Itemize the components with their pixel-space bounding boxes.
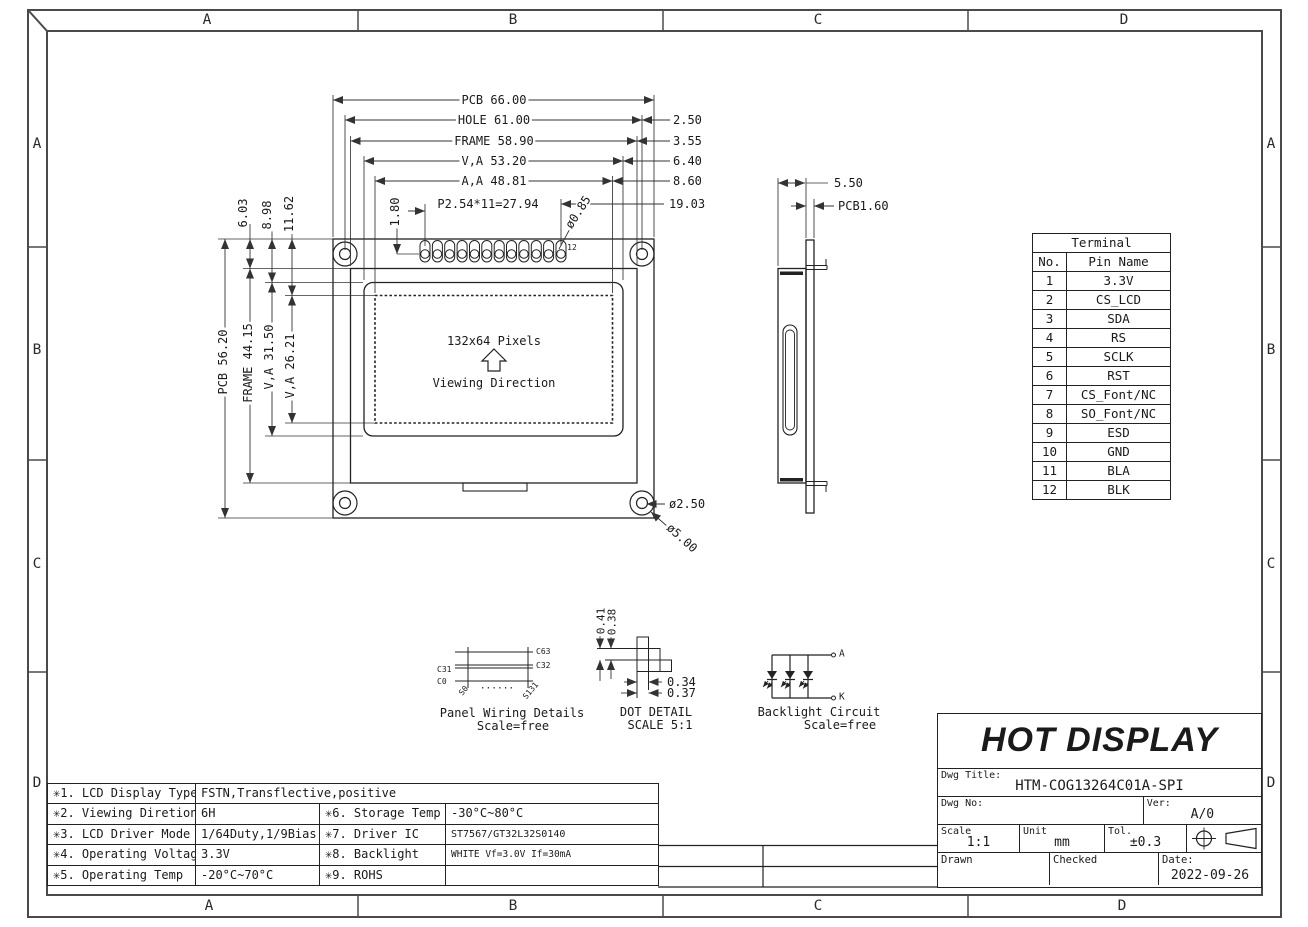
spec-value: WHITE Vf=3.0V If=30mA (446, 845, 659, 865)
terminal-no: 4 (1033, 329, 1067, 348)
dim-hole-width: HOLE 61.00 (456, 114, 532, 126)
terminal-pin-name: SO_Font/NC (1067, 405, 1171, 424)
dim-offset-frame: 3.55 (671, 135, 704, 147)
terminal-pin-name: BLA (1067, 462, 1171, 481)
spec-key: ✳3. LCD Driver Mode (48, 824, 196, 844)
dim-va-width: V,A 53.20 (459, 155, 528, 167)
zone-col-c-top: C (814, 13, 823, 28)
terminal-no: 1 (1033, 272, 1067, 291)
terminal-pin-name: RS (1067, 329, 1171, 348)
spec-key: ✳9. ROHS (320, 865, 446, 885)
zone-row-c-left: C (33, 557, 42, 572)
panel-wiring-scale: Scale=free (477, 720, 549, 732)
checked-label: Checked (1053, 854, 1097, 866)
projection-symbol-icon (1188, 826, 1261, 851)
terminal-no: 11 (1033, 462, 1067, 481)
spec-key: ✳7. Driver IC (320, 824, 446, 844)
zone-col-a-bottom: A (205, 899, 214, 914)
dwg-no-label: Dwg No: (941, 798, 983, 809)
dimension-lines (225, 100, 834, 527)
terminal-row: 9 ESD (1033, 424, 1171, 443)
zone-row-c-right: C (1267, 557, 1276, 572)
terminal-no: 8 (1033, 405, 1067, 424)
terminal-row: 7 CS_Font/NC (1033, 386, 1171, 405)
dim-hole-dia: ø2.50 (667, 498, 707, 510)
terminal-pin-name: ESD (1067, 424, 1171, 443)
spec-key: ✳4. Operating Voltage (48, 845, 196, 865)
dim-aa-height: V,A 26.21 (284, 331, 296, 400)
terminal-title: Terminal (1033, 234, 1171, 253)
note-cells (658, 846, 937, 888)
spec-key: ✳8. Backlight (320, 845, 446, 865)
terminal-pin-name: BLK (1067, 481, 1171, 500)
dim-top-gap-frame: 6.03 (237, 197, 249, 230)
dim-offset-pins: 19.03 (667, 198, 707, 210)
dim-offset-va: 6.40 (671, 155, 704, 167)
zone-col-c-bottom: C (814, 899, 823, 914)
dim-top-gap-aa: 11.62 (283, 194, 295, 234)
terminal-row: 8 SO_Font/NC (1033, 405, 1171, 424)
dim-top-gap-va: 8.98 (261, 199, 273, 232)
terminal-pin-name: SCLK (1067, 348, 1171, 367)
spec-key: ✳5. Operating Temp (48, 865, 196, 885)
scale-value: 1:1 (938, 835, 1019, 850)
terminal-row: 10 GND (1033, 443, 1171, 462)
dim-pcb-thickness: PCB1.60 (836, 200, 891, 212)
terminal-no: 6 (1033, 367, 1067, 386)
terminal-col-no: No. (1033, 253, 1067, 272)
terminal-row: 5 SCLK (1033, 348, 1171, 367)
viewing-direction-label: Viewing Direction (433, 377, 556, 389)
side-view (778, 240, 827, 513)
backlight-title: Backlight Circuit (758, 706, 881, 718)
dim-pin-offset: 1.80 (389, 196, 401, 229)
terminal-row: 12 BLK (1033, 481, 1171, 500)
zone-row-d-right: D (1267, 776, 1276, 791)
terminal-col-pin-name: Pin Name (1067, 253, 1171, 272)
spec-row: ✳4. Operating Voltage 3.3V ✳8. Backlight… (48, 845, 659, 865)
terminal-pin-name: GND (1067, 443, 1171, 462)
spec-key: ✳6. Storage Temp (320, 804, 446, 824)
dot-dim-038: 0.38 (607, 607, 618, 638)
spec-value: -30°C~80°C (446, 804, 659, 824)
terminal-table: Terminal No. Pin Name 1 3.3V 2 CS_LCD 3 … (1032, 233, 1171, 500)
spec-value: 1/64Duty,1/9Bias (196, 824, 320, 844)
zone-row-b-left: B (33, 343, 42, 358)
viewing-direction-arrow (482, 349, 506, 371)
led-symbols (763, 671, 813, 689)
dim-offset-aa: 8.60 (671, 175, 704, 187)
spec-value (446, 865, 659, 885)
zone-col-d-top: D (1120, 13, 1129, 28)
spec-value: ST7567/GT32L32S0140 (446, 824, 659, 844)
zone-col-b-top: B (509, 13, 518, 28)
spec-row: ✳3. LCD Driver Mode 1/64Duty,1/9Bias ✳7.… (48, 824, 659, 844)
panel-wiring-title: Panel Wiring Details (440, 707, 585, 719)
terminal-pin-name: SDA (1067, 310, 1171, 329)
spec-row: ✳2. Viewing Diretion 6H ✳6. Storage Temp… (48, 804, 659, 824)
drawn-label: Drawn (941, 854, 973, 866)
backlight-cathode-label: K (839, 692, 845, 702)
dim-frame-height: FRAME 44.15 (242, 321, 254, 404)
dim-aa-width: A,A 48.81 (459, 175, 528, 187)
wiring-c0-label: C0 (437, 678, 447, 686)
ver-value: A/0 (1144, 807, 1261, 822)
dim-va-height: V,A 31.50 (263, 322, 275, 391)
zone-col-b-bottom: B (509, 899, 518, 914)
terminal-row: 11 BLA (1033, 462, 1171, 481)
spec-value: 3.3V (196, 845, 320, 865)
zone-row-b-right: B (1267, 343, 1276, 358)
spec-value: FSTN,Transflective,positive (196, 784, 659, 804)
terminal-no: 12 (1033, 481, 1067, 500)
company-name: HOT DISPLAY (938, 714, 1261, 768)
backlight-scale: Scale=free (804, 719, 876, 731)
terminal-pin-name: CS_Font/NC (1067, 386, 1171, 405)
terminal-no: 3 (1033, 310, 1067, 329)
zone-col-d-bottom: D (1118, 899, 1127, 914)
zone-col-a-top: A (203, 13, 212, 28)
dim-pcb-height: PCB 56.20 (217, 327, 229, 396)
wiring-dots: ...... (480, 681, 514, 691)
unit-value: mm (1020, 835, 1104, 850)
pin-12-label: 12 (567, 244, 577, 252)
tol-value: ±0.3 (1105, 835, 1186, 850)
spec-table: ✳1. LCD Display Type FSTN,Transflective,… (47, 783, 659, 886)
dwg-title-value: HTM-COG13264C01A-SPI (938, 778, 1261, 794)
title-block: HOT DISPLAY Dwg Title: HTM-COG13264C01A-… (937, 713, 1262, 888)
dim-pcb-width: PCB 66.00 (459, 94, 528, 106)
dot-dim-037: 0.37 (665, 687, 698, 699)
dim-frame-width: FRAME 58.90 (452, 135, 535, 147)
spec-row: ✳1. LCD Display Type FSTN,Transflective,… (48, 784, 659, 804)
terminal-row: 1 3.3V (1033, 272, 1171, 291)
date-value: 2022-09-26 (1159, 868, 1261, 883)
backlight-anode-label: A (839, 649, 845, 659)
dot-detail-title: DOT DETAIL (620, 706, 692, 718)
pixels-label: 132x64 Pixels (447, 335, 541, 347)
spec-value: -20°C~70°C (196, 865, 320, 885)
dim-pin-pitch: P2.54*11=27.94 (435, 198, 540, 210)
terminal-no: 2 (1033, 291, 1067, 310)
terminal-no: 7 (1033, 386, 1067, 405)
wiring-c32-label: C32 (536, 662, 550, 670)
wiring-c63-label: C63 (536, 648, 550, 656)
terminal-row: 2 CS_LCD (1033, 291, 1171, 310)
zone-row-a-right: A (1267, 137, 1276, 152)
spec-key: ✳1. LCD Display Type (48, 784, 196, 804)
dim-offset-hole: 2.50 (671, 114, 704, 126)
terminal-no: 9 (1033, 424, 1067, 443)
wiring-c31-label: C31 (437, 666, 451, 674)
terminal-pin-name: CS_LCD (1067, 291, 1171, 310)
drawing-sheet: { "zones": { "cols": ["A","B","C","D"], … (0, 0, 1308, 927)
terminal-no: 10 (1033, 443, 1067, 462)
zone-row-d-left: D (33, 776, 42, 791)
date-label: Date: (1162, 854, 1194, 866)
terminal-row: 6 RST (1033, 367, 1171, 386)
dot-detail-scale: SCALE 5:1 (627, 719, 692, 731)
terminal-no: 5 (1033, 348, 1067, 367)
dim-thickness: 5.50 (832, 177, 865, 189)
spec-row: ✳5. Operating Temp -20°C~70°C ✳9. ROHS (48, 865, 659, 885)
pin-header (420, 241, 566, 263)
terminal-pin-name: RST (1067, 367, 1171, 386)
spec-value: 6H (196, 804, 320, 824)
spec-key: ✳2. Viewing Diretion (48, 804, 196, 824)
dot-detail-figure (597, 628, 672, 698)
terminal-row: 3 SDA (1033, 310, 1171, 329)
zone-row-a-left: A (33, 137, 42, 152)
backlight-circuit-figure (763, 653, 836, 700)
terminal-pin-name: 3.3V (1067, 272, 1171, 291)
terminal-row: 4 RS (1033, 329, 1171, 348)
